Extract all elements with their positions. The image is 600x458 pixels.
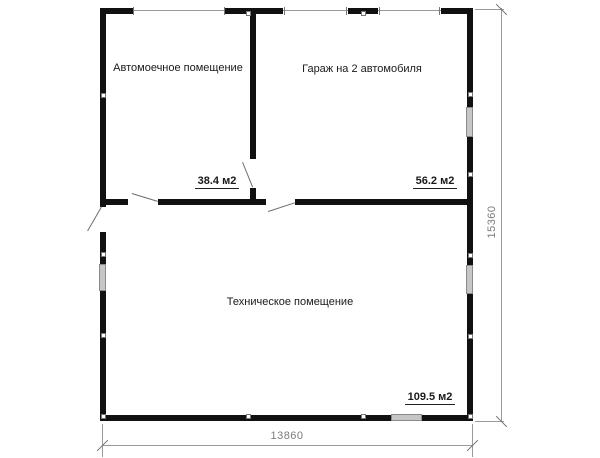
wall-interior-vertical-upper xyxy=(250,8,256,159)
gate-opening-line-2 xyxy=(283,10,348,11)
room-label-carwash: Автомоечное помещение xyxy=(106,62,250,74)
gate-tick xyxy=(439,7,440,15)
node-marker xyxy=(246,11,251,16)
gate-opening-line-1 xyxy=(133,10,225,11)
door-leaf-carwash-tech xyxy=(132,193,158,202)
wall-interior-horizontal-3 xyxy=(295,199,473,205)
node-marker xyxy=(101,93,106,98)
node-marker xyxy=(361,11,366,16)
gate-tick xyxy=(379,7,380,15)
area-value: 109.5 м2 xyxy=(405,391,456,405)
node-marker xyxy=(101,414,106,419)
node-marker xyxy=(246,414,251,419)
node-marker xyxy=(101,333,106,338)
window-right-upper xyxy=(466,107,473,137)
area-value: 38.4 м2 xyxy=(195,175,240,189)
node-marker xyxy=(468,334,473,339)
node-marker xyxy=(361,414,366,419)
dim-ext-bottom-left xyxy=(102,424,103,457)
window-left xyxy=(99,264,106,291)
area-label-technical: 109.5 м2 xyxy=(398,391,462,403)
floor-plan-canvas: Автомоечное помещение Гараж на 2 автомоб… xyxy=(0,0,600,458)
window-bottom xyxy=(391,414,422,421)
gate-tick xyxy=(284,7,285,15)
gate-tick xyxy=(346,7,347,15)
dim-line-right xyxy=(501,8,502,422)
wall-interior-horizontal-2 xyxy=(158,199,266,205)
node-marker xyxy=(468,92,473,97)
dim-text-height: 15360 xyxy=(486,190,500,254)
wall-right xyxy=(467,8,473,421)
dim-text-width: 13860 xyxy=(252,430,322,442)
area-value: 56.2 м2 xyxy=(413,175,458,189)
room-label-garage: Гараж на 2 автомобиля xyxy=(292,63,432,75)
dim-ext-bottom-right xyxy=(472,424,473,457)
room-label-technical: Техническое помещение xyxy=(220,296,360,308)
area-label-garage: 56.2 м2 xyxy=(406,175,464,187)
gate-tick xyxy=(224,7,225,15)
node-marker xyxy=(468,172,473,177)
door-leaf-exterior xyxy=(87,207,102,232)
wall-left-lower xyxy=(100,232,106,421)
node-marker xyxy=(101,252,106,257)
wall-left-upper xyxy=(100,8,106,207)
door-leaf-garage-tech xyxy=(268,202,295,212)
dim-line-bottom xyxy=(102,445,473,446)
node-marker xyxy=(468,253,473,258)
wall-interior-horizontal-1 xyxy=(100,199,128,205)
window-right-lower xyxy=(466,265,473,294)
node-marker xyxy=(468,414,473,419)
area-label-carwash: 38.4 м2 xyxy=(188,175,246,187)
gate-tick xyxy=(133,7,134,15)
gate-opening-line-3 xyxy=(378,10,441,11)
